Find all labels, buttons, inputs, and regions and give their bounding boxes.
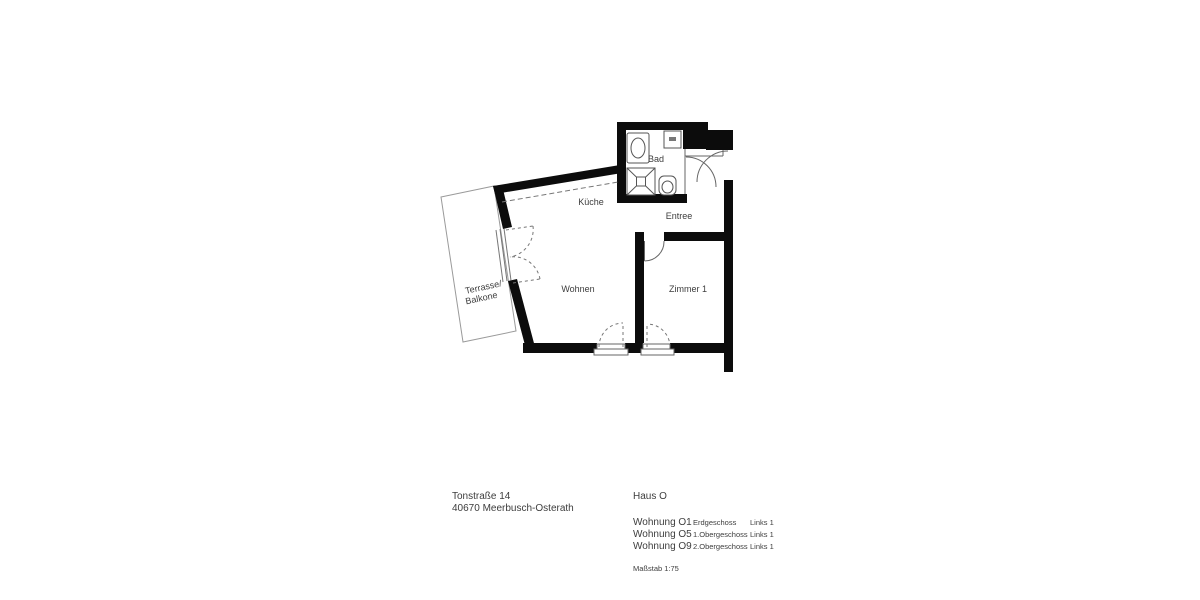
apartment-name: Wohnung O9	[633, 541, 693, 552]
window-zimmer-sill	[641, 349, 674, 355]
wall-corner-step-a	[683, 122, 708, 149]
window-wohnen-swing	[599, 323, 623, 347]
french-door-swing-top	[510, 226, 533, 257]
room-label-kueche: Küche	[578, 197, 604, 207]
window-wohnen-frame	[597, 344, 625, 349]
washing-machine-icon	[664, 131, 681, 148]
address-block: Tonstraße 14 40670 Meerbusch-Osterath	[452, 491, 574, 515]
room-label-zimmer1: Zimmer 1	[669, 284, 707, 294]
scale-label: Maßstab 1:75	[633, 564, 679, 573]
apartment-floor: 2.Obergeschoss	[693, 542, 750, 551]
wall-corner-step-b	[706, 130, 733, 150]
window-wohnen-sill	[594, 349, 628, 355]
table-row: Wohnung O5 1.Obergeschoss Links 1	[633, 529, 774, 541]
wall-bottom-right	[670, 343, 733, 353]
wall-interior-vertical	[635, 232, 644, 343]
floor-plan-drawing: Bad Küche Entree Wohnen Zimmer 1 Terrass…	[440, 110, 740, 380]
apartment-position: Links 1	[750, 530, 774, 539]
zimmer1-door-swing	[645, 241, 665, 261]
building-name: Haus O	[633, 491, 667, 503]
door-swings	[645, 151, 729, 261]
wall-bad-left	[617, 122, 626, 196]
room-label-bad: Bad	[648, 154, 664, 164]
french-door-swing-bottom	[510, 257, 540, 279]
apartment-table: Wohnung O1 Erdgeschoss Links 1 Wohnung O…	[633, 517, 774, 553]
address-street: Tonstraße 14	[452, 491, 574, 503]
building-title: Haus O	[633, 491, 667, 503]
address-city: 40670 Meerbusch-Osterath	[452, 503, 574, 515]
apartment-name: Wohnung O5	[633, 529, 693, 540]
bad-door-swing	[686, 157, 716, 187]
apartment-floor: Erdgeschoss	[693, 518, 750, 527]
apartment-name: Wohnung O1	[633, 517, 693, 528]
sink-icon	[627, 133, 649, 163]
wall-entree-zimmer	[664, 232, 733, 241]
shower-icon	[627, 168, 655, 195]
room-label-wohnen: Wohnen	[561, 284, 594, 294]
apartment-floor: 1.Obergeschoss	[693, 530, 750, 539]
wall-kitchen-angled	[493, 165, 622, 194]
wall-bottom-left	[523, 343, 597, 353]
thin-lines	[685, 149, 723, 194]
room-label-entree: Entree	[666, 211, 693, 221]
table-row: Wohnung O1 Erdgeschoss Links 1	[633, 517, 774, 529]
wall-right	[724, 180, 733, 372]
apartment-position: Links 1	[750, 518, 774, 527]
toilet-icon	[659, 176, 676, 195]
page: Bad Küche Entree Wohnen Zimmer 1 Terrass…	[0, 0, 1200, 600]
apartment-position: Links 1	[750, 542, 774, 551]
floor-plan: Bad Küche Entree Wohnen Zimmer 1 Terrass…	[440, 110, 740, 380]
table-row: Wohnung O9 2.Obergeschoss Links 1	[633, 541, 774, 553]
